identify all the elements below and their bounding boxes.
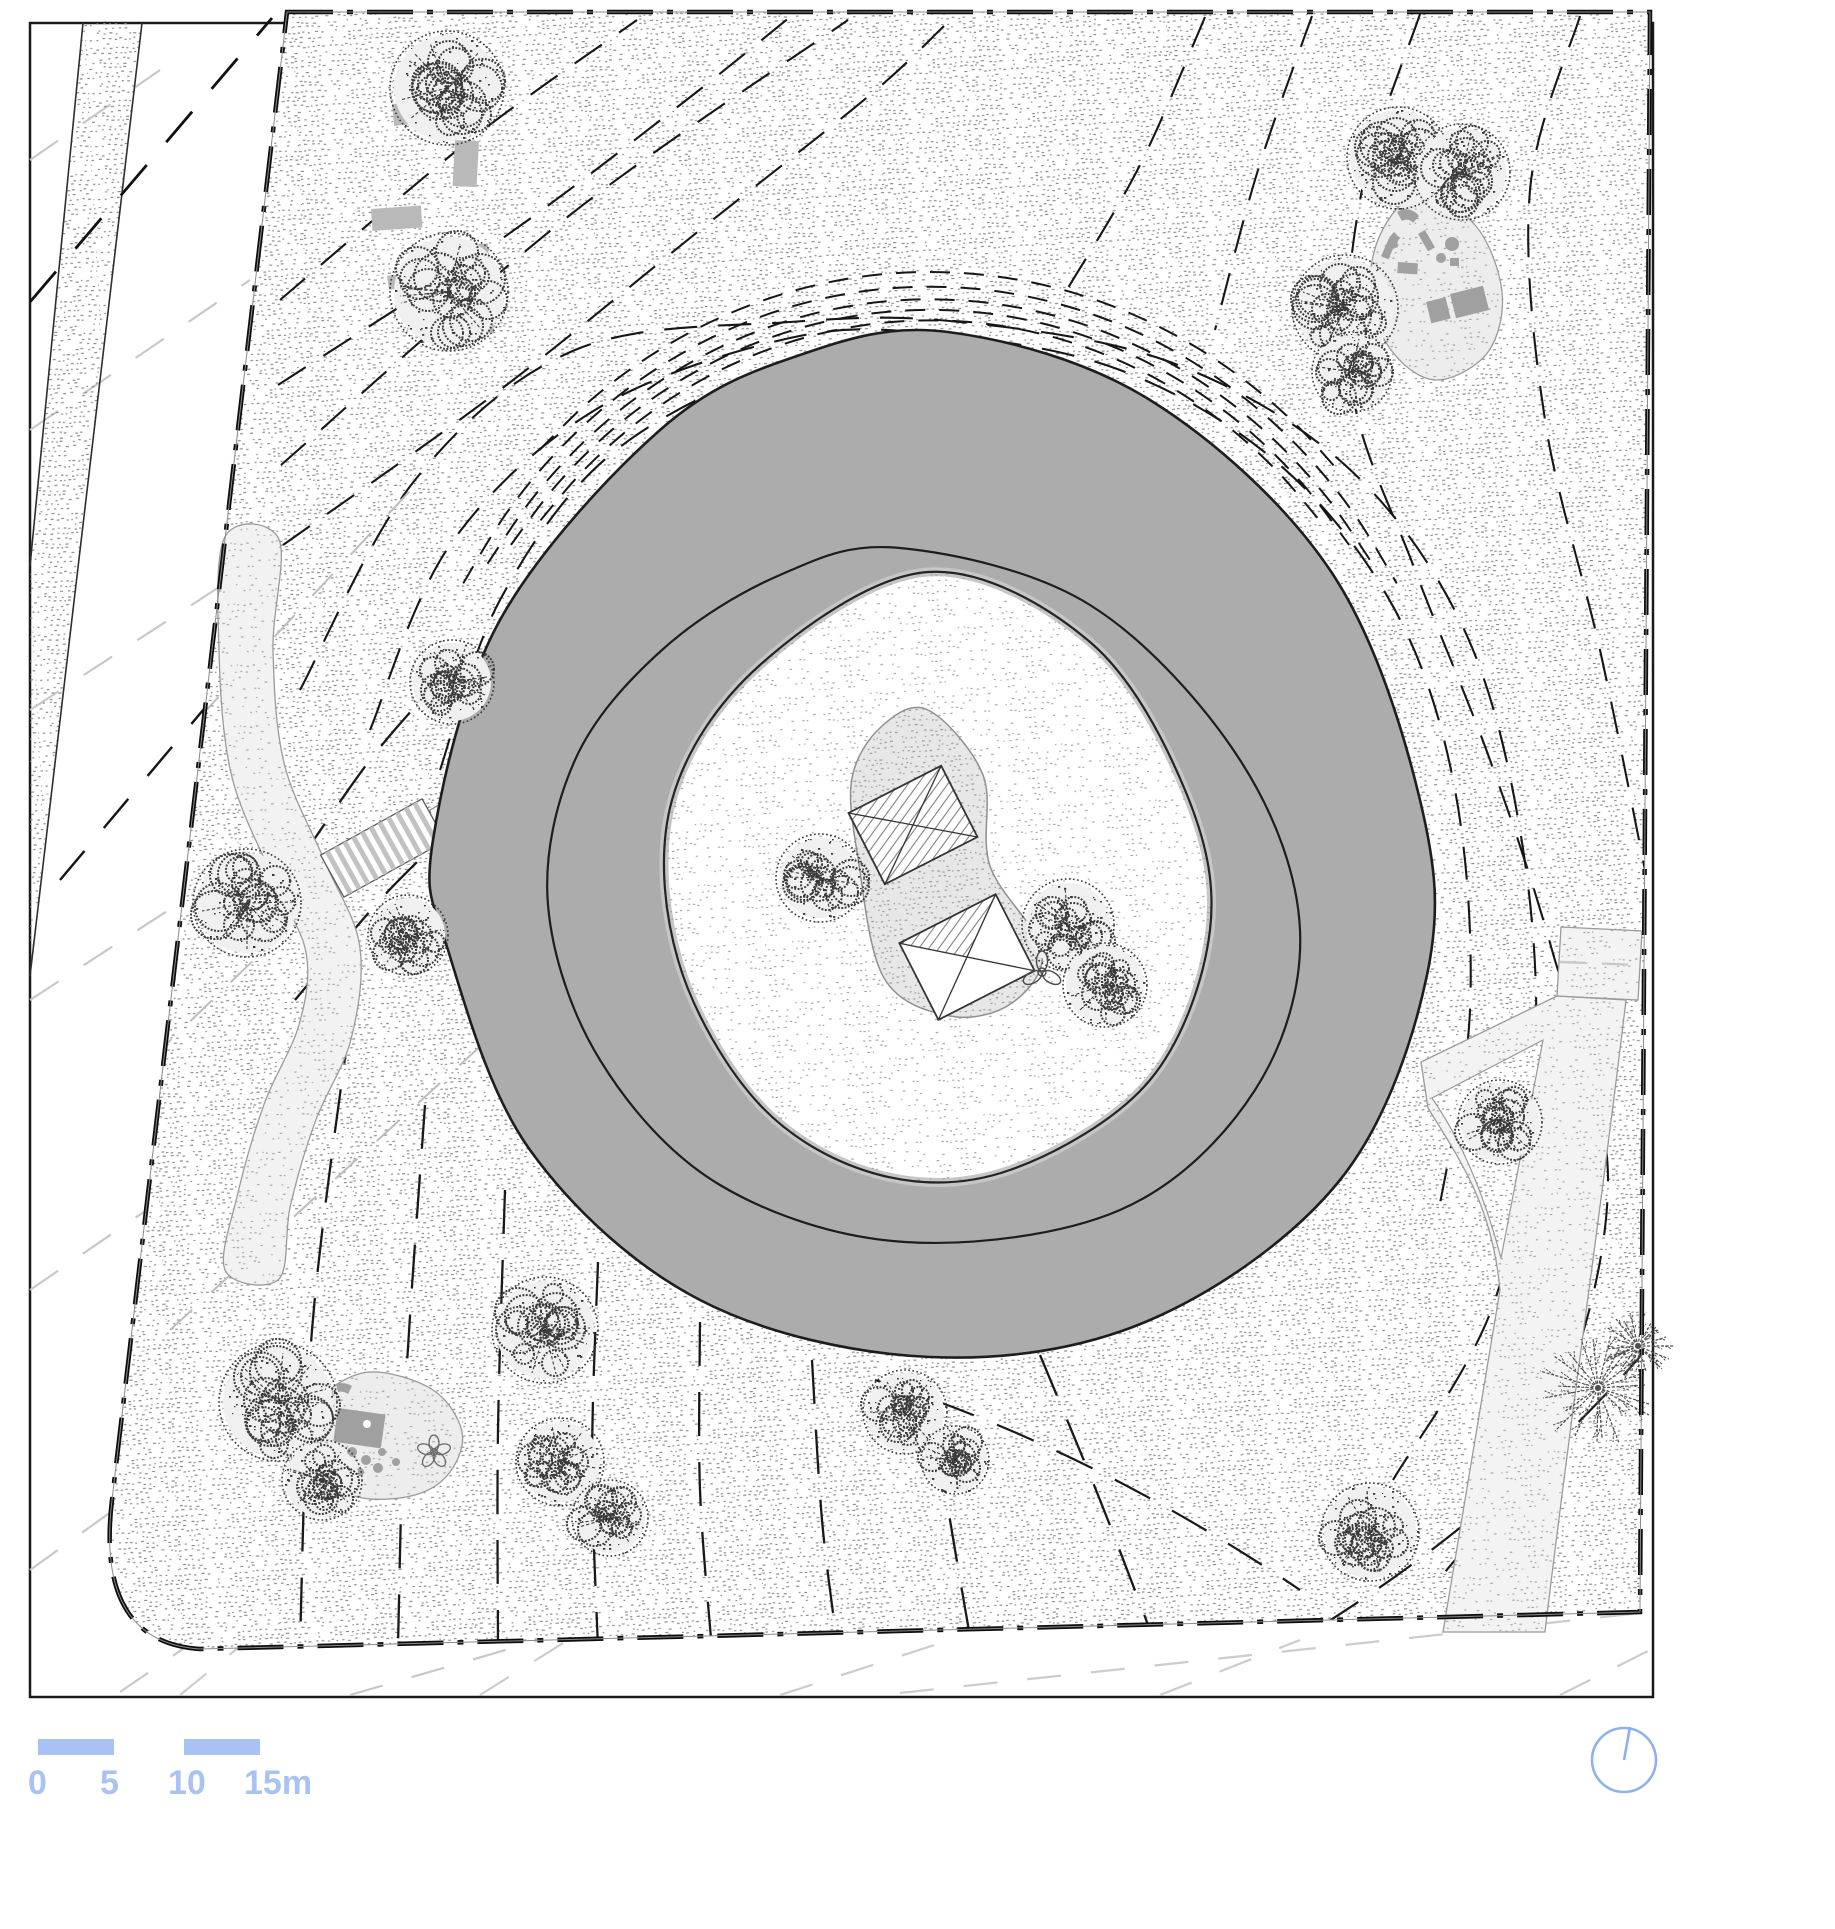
svg-text:5: 5 <box>100 1764 119 1802</box>
svg-text:15m: 15m <box>244 1764 312 1802</box>
svg-text:0: 0 <box>28 1764 47 1802</box>
svg-text:10: 10 <box>168 1764 206 1802</box>
